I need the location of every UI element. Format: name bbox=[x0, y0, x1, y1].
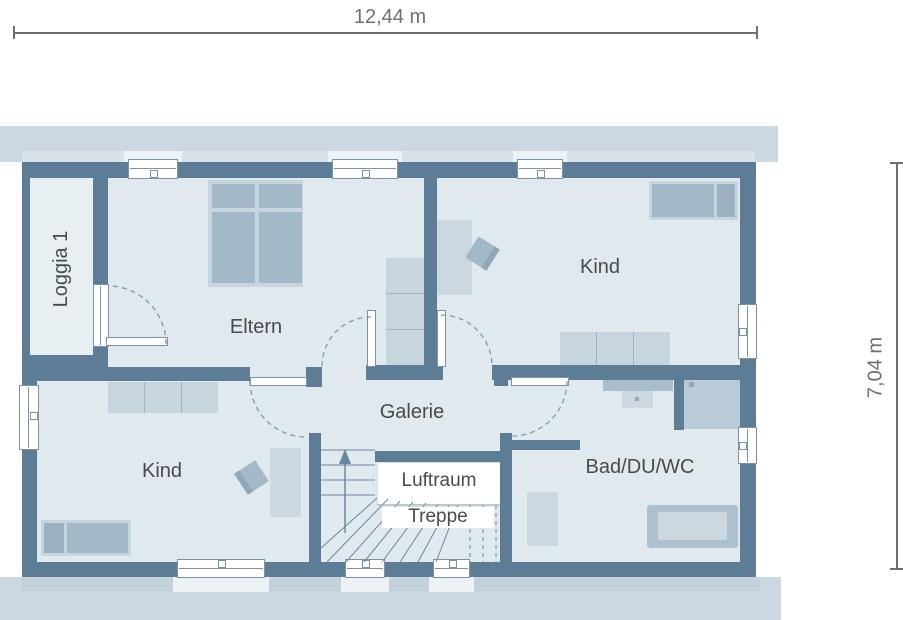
wall-mid-center bbox=[366, 365, 443, 380]
window-handle bbox=[218, 560, 226, 568]
label-bad: Bad/DU/WC bbox=[565, 456, 715, 478]
bathtub-inner bbox=[658, 512, 727, 540]
wardrobe-eltern bbox=[386, 258, 424, 365]
label-loggia: Loggia 1 bbox=[50, 209, 72, 329]
window-frame-line bbox=[130, 168, 176, 169]
bed-pillow bbox=[44, 523, 64, 553]
window-handle bbox=[449, 560, 457, 568]
window-frame-line bbox=[28, 387, 29, 448]
bed-kind-top bbox=[649, 181, 738, 220]
dimension-height-label: 7,04 m bbox=[865, 308, 888, 428]
wall-luftraum bbox=[375, 451, 503, 462]
wardrobe-divider bbox=[633, 332, 634, 368]
wall-bottom bbox=[22, 562, 756, 577]
bathtub bbox=[647, 505, 738, 548]
bed-kind-bottom bbox=[41, 520, 131, 556]
window-handle bbox=[739, 442, 747, 450]
dimension-tick bbox=[890, 568, 903, 570]
window-handle bbox=[362, 560, 370, 568]
bed-pillow bbox=[259, 184, 302, 208]
dimension-line-right bbox=[896, 162, 898, 570]
wall-mid-left bbox=[22, 367, 250, 381]
wall-stair-west bbox=[309, 433, 321, 562]
wall-shower bbox=[674, 377, 684, 430]
dimension-line-top bbox=[13, 32, 757, 34]
wc bbox=[527, 492, 558, 546]
dimension-width-label: 12,44 m bbox=[330, 6, 450, 29]
sink-drain bbox=[635, 397, 639, 401]
wardrobe-divider bbox=[181, 382, 182, 413]
window-sill bbox=[173, 577, 269, 592]
door-frame-line bbox=[100, 286, 101, 345]
window-handle bbox=[30, 412, 38, 420]
dimension-tick bbox=[756, 26, 758, 39]
bed-pillow bbox=[212, 184, 255, 208]
window-right-1 bbox=[738, 304, 757, 359]
wardrobe-divider bbox=[386, 293, 424, 294]
bed-mattress bbox=[259, 212, 302, 283]
window-handle bbox=[739, 328, 747, 336]
door-leaf-kind-bottom bbox=[250, 377, 307, 386]
door-leaf-bad bbox=[511, 377, 569, 386]
bed-mattress bbox=[67, 523, 128, 553]
window-top-1 bbox=[128, 159, 178, 179]
door-leaf-loggia bbox=[106, 337, 168, 346]
window-handle bbox=[150, 170, 158, 178]
window-bottom-3 bbox=[433, 559, 470, 578]
desk-kind-bottom bbox=[270, 448, 301, 517]
window-frame-line bbox=[519, 168, 561, 169]
label-kind-top: Kind bbox=[550, 256, 650, 278]
window-bottom-2 bbox=[345, 559, 385, 578]
window-top-3 bbox=[517, 159, 563, 179]
door-leaf-eltern bbox=[367, 310, 376, 367]
floor-plan: Loggia 1 Eltern Kind Kind Galerie Luftra… bbox=[0, 0, 903, 620]
dimension-tick bbox=[13, 26, 15, 39]
wall-bad-door-stub bbox=[494, 377, 508, 386]
wardrobe-divider bbox=[144, 382, 145, 413]
shower bbox=[684, 377, 740, 429]
window-handle bbox=[537, 170, 545, 178]
window-sill bbox=[341, 577, 389, 592]
wall-mid-jamb bbox=[306, 367, 322, 387]
label-galerie: Galerie bbox=[352, 401, 472, 423]
parents-bed bbox=[208, 180, 303, 287]
window-sill bbox=[429, 577, 474, 592]
door-leaf-kind-top bbox=[437, 310, 446, 367]
label-treppe: Treppe bbox=[382, 507, 494, 528]
label-luftraum: Luftraum bbox=[379, 471, 499, 492]
label-eltern: Eltern bbox=[200, 316, 312, 338]
sink-basin bbox=[622, 391, 653, 408]
wall-left-upper bbox=[22, 162, 30, 368]
shower-drain bbox=[689, 382, 694, 387]
bed-mattress bbox=[652, 184, 714, 217]
window-right-2 bbox=[738, 427, 757, 464]
window-frame-line bbox=[334, 168, 396, 169]
wardrobe-kind-bottom bbox=[108, 382, 218, 413]
window-handle bbox=[362, 170, 370, 178]
wardrobe-divider bbox=[596, 332, 597, 368]
wardrobe-divider bbox=[386, 329, 424, 330]
wardrobe-kind-top bbox=[560, 332, 670, 368]
wall-wc-partition bbox=[512, 440, 580, 450]
bed-mattress bbox=[212, 212, 255, 283]
roof-band-bottom-strip bbox=[22, 577, 760, 591]
bed-pillow bbox=[717, 184, 735, 217]
label-kind-bottom: Kind bbox=[112, 460, 212, 482]
window-top-2 bbox=[332, 159, 398, 179]
window-left bbox=[19, 385, 39, 450]
dimension-tick bbox=[890, 162, 903, 164]
window-bottom-1 bbox=[177, 559, 265, 578]
wall-center bbox=[424, 178, 437, 367]
